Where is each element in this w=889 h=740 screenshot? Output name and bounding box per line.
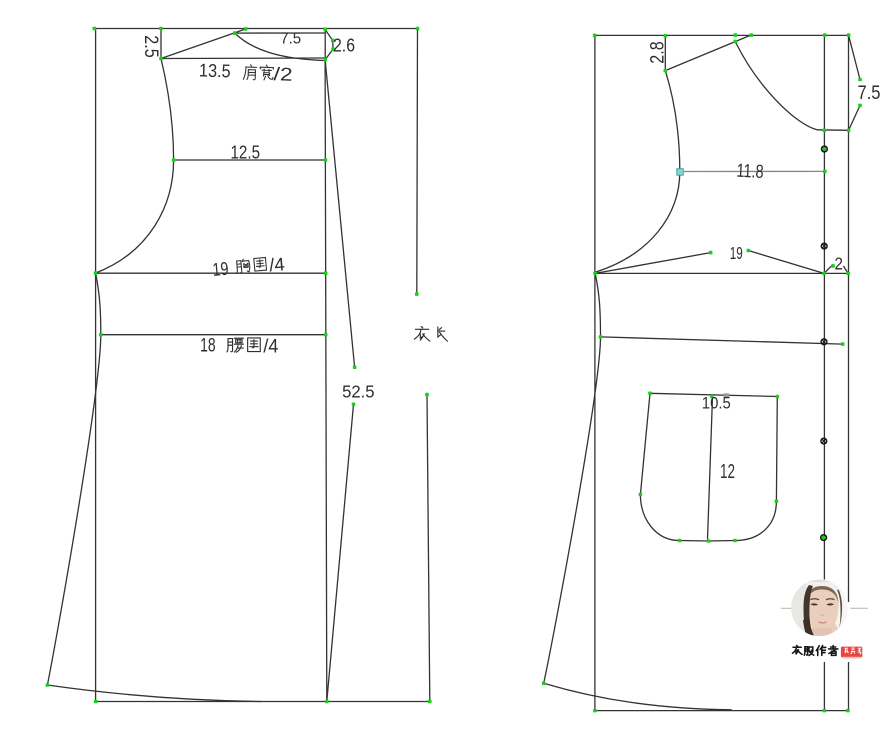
svg-text:10.5: 10.5: [702, 394, 731, 413]
svg-text:2.5: 2.5: [140, 35, 161, 58]
svg-text:12: 12: [720, 461, 735, 483]
svg-text:52.5: 52.5: [342, 382, 375, 402]
svg-text:12.5: 12.5: [231, 142, 261, 163]
svg-text:2.8: 2.8: [647, 41, 668, 64]
svg-text:/2: /2: [273, 63, 293, 85]
svg-text:7.5: 7.5: [858, 83, 881, 104]
svg-text:2.6: 2.6: [333, 35, 355, 56]
svg-text:7.5: 7.5: [280, 30, 301, 47]
svg-text:11.8: 11.8: [736, 161, 764, 183]
svg-text:13.5: 13.5: [199, 59, 231, 81]
svg-text:/4: /4: [263, 337, 278, 358]
svg-text:19: 19: [730, 243, 743, 263]
svg-text:2: 2: [835, 254, 844, 274]
svg-text:19: 19: [212, 258, 230, 280]
svg-text:18: 18: [200, 336, 216, 357]
svg-text:/4: /4: [268, 253, 285, 275]
